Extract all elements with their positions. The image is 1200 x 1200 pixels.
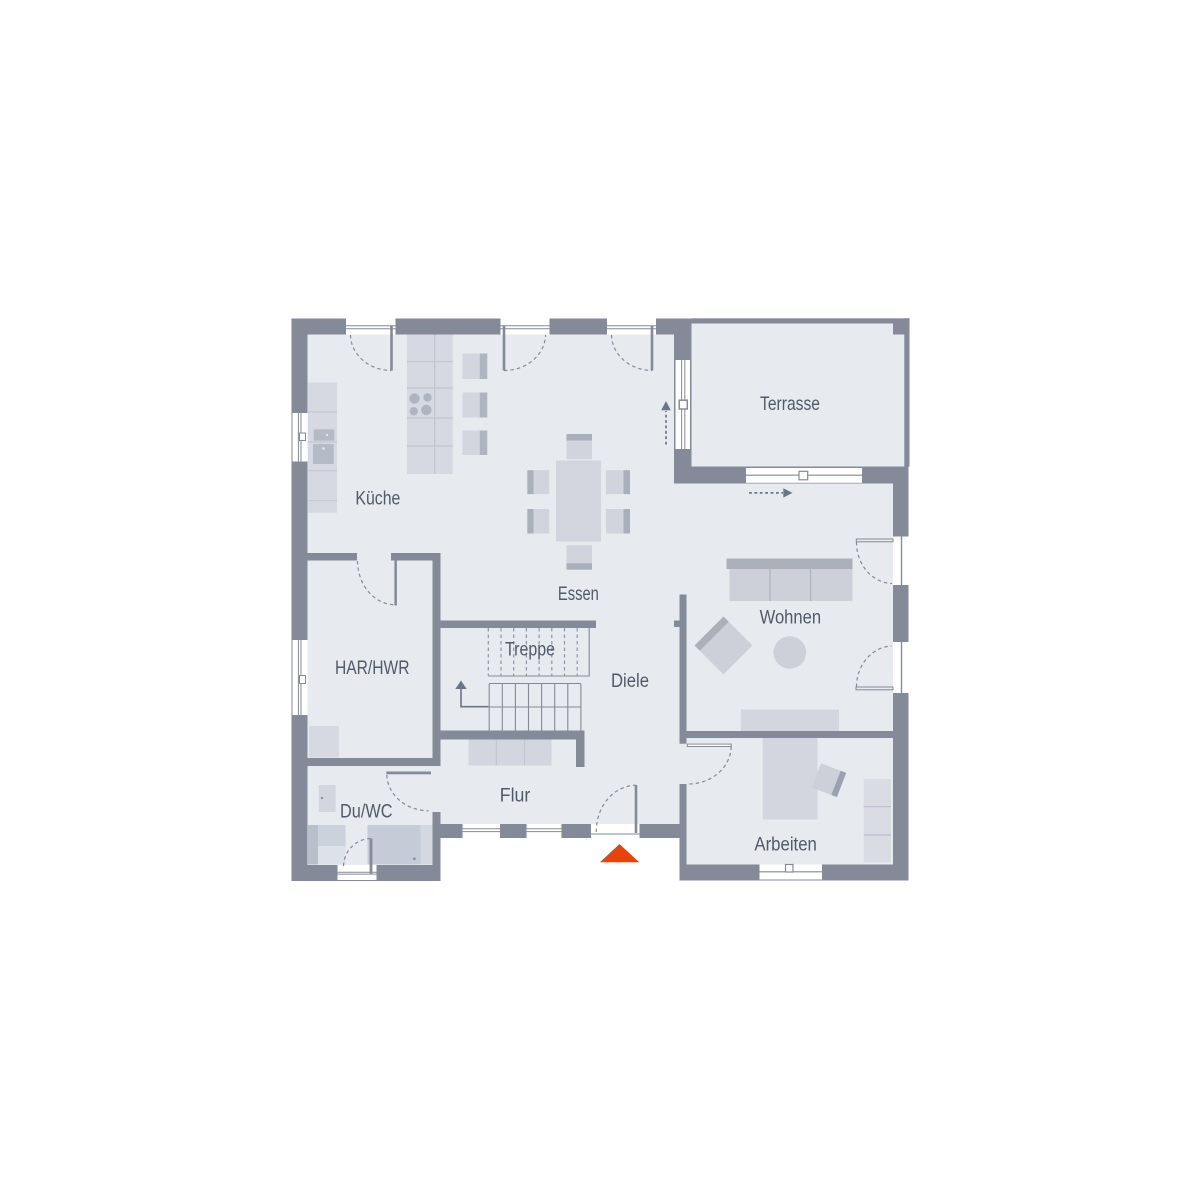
svg-text:Essen: Essen	[558, 583, 599, 605]
svg-text:Küche: Küche	[355, 488, 400, 510]
svg-text:Arbeiten: Arbeiten	[754, 833, 817, 855]
svg-text:Terrasse: Terrasse	[760, 393, 820, 415]
svg-text:Flur: Flur	[500, 785, 531, 807]
svg-text:Treppe: Treppe	[505, 639, 555, 661]
svg-text:Wohnen: Wohnen	[760, 606, 822, 628]
svg-text:Du/WC: Du/WC	[340, 801, 393, 823]
svg-text:HAR/HWR: HAR/HWR	[335, 657, 410, 679]
svg-text:Diele: Diele	[611, 670, 649, 692]
